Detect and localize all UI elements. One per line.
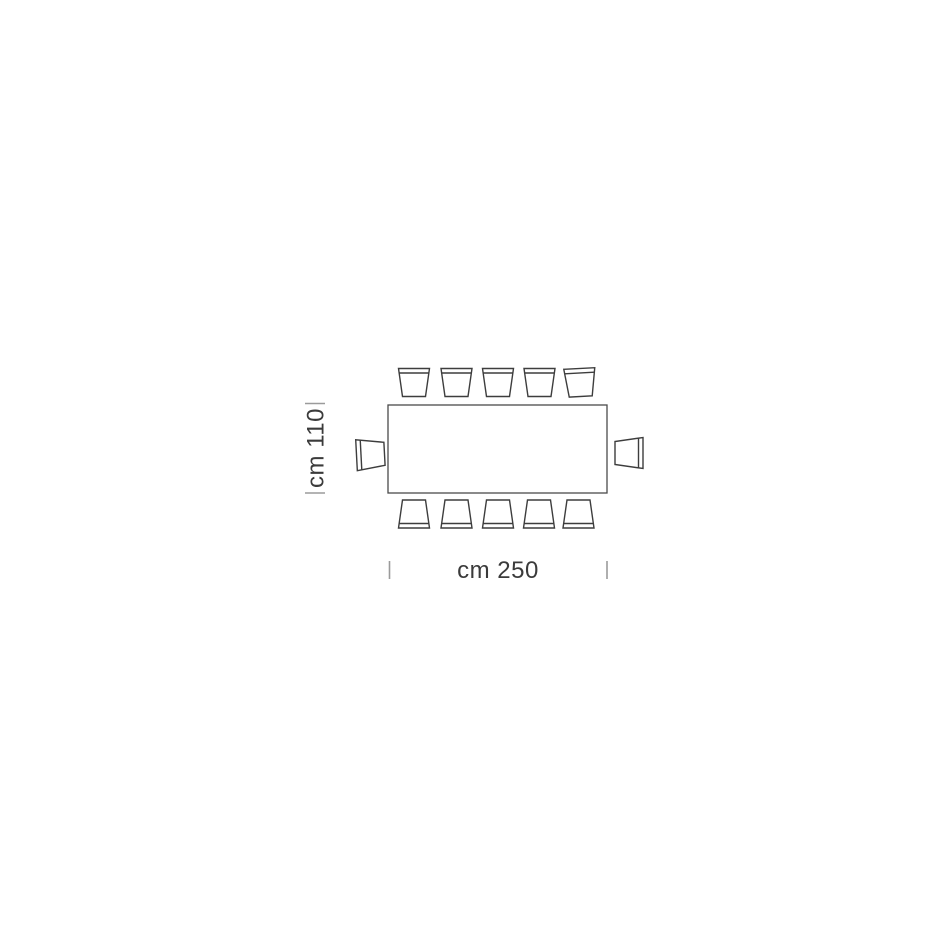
chair-left — [356, 438, 386, 470]
chair-bottom-4 — [524, 500, 555, 528]
chair-top-2 — [441, 369, 472, 397]
chair-bottom-3 — [483, 500, 514, 528]
drawing-canvas: cm 110 cm 250 — [0, 0, 950, 950]
depth-dimension-label: cm 110 — [303, 408, 330, 488]
table-plan-diagram: cm 110 cm 250 — [0, 0, 950, 950]
chair-top-5 — [564, 368, 596, 398]
chair-bottom-2 — [441, 500, 472, 528]
chair-top-1 — [399, 369, 430, 397]
table-top-outline — [388, 405, 607, 493]
chair-bottom-5 — [563, 500, 594, 528]
width-dimension-label: cm 250 — [457, 557, 539, 584]
chair-bottom-1 — [399, 500, 430, 528]
chair-top-4 — [524, 369, 555, 397]
chair-top-3 — [483, 369, 514, 397]
chair-right — [615, 438, 643, 469]
